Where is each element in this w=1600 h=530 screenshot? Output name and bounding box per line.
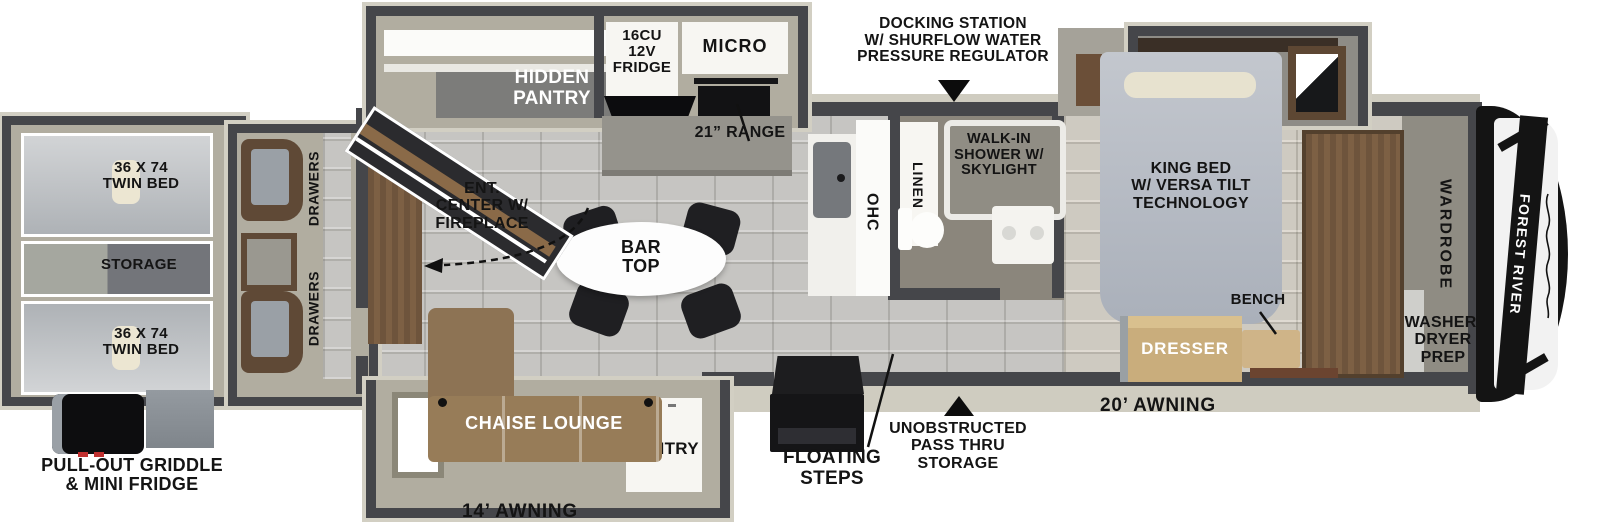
fridge-cabinet: 16CU 12V FRIDGE [606, 22, 678, 96]
mini-fridge [146, 390, 214, 448]
pantry-handle-2 [668, 404, 676, 407]
bedroom-mat [1250, 368, 1338, 378]
dresser: DRESSER [1128, 316, 1242, 382]
bench [1242, 330, 1300, 368]
floating-steps-box [770, 394, 864, 452]
storage-compartment: STORAGE [21, 241, 213, 297]
toilet-bowl [910, 212, 944, 248]
chaise-arm [428, 308, 514, 404]
awning-front-label: 20’ AWNING [1078, 396, 1238, 417]
docking-station-label: DOCKING STATION W/ SHURFLOW WATER PRESSU… [822, 16, 1084, 66]
twin-bed-top: 36 X 74 TWIN BED [21, 133, 213, 237]
bunk-window [241, 233, 297, 291]
bar-top-table: BAR TOP [556, 222, 726, 296]
king-bed-label: KING BED W/ VERSA TILT TECHNOLOGY [1106, 160, 1276, 212]
bedroom-closet [1302, 130, 1404, 378]
chaise-pillow-right [644, 398, 653, 407]
king-bed-pillow [1124, 72, 1256, 98]
pantry-fridge-divider [594, 16, 604, 118]
bunk-wardrobe-top [241, 139, 303, 221]
floating-steps-tread [778, 428, 856, 444]
ohc-label: OHC [863, 172, 880, 252]
bedroom-window [1288, 46, 1346, 120]
pass-thru-arrow-icon [944, 396, 974, 416]
bunk-wardrobe-bottom-mirror [251, 301, 289, 357]
faucet-icon [837, 174, 845, 182]
chaise-pillow-left [438, 398, 447, 407]
twin-bed-bottom: 36 X 74 TWIN BED [21, 301, 213, 395]
griddle-label: PULL-OUT GRIDDLE & MINI FRIDGE [16, 456, 248, 495]
micro-label: MICRO [682, 37, 788, 56]
storage-label: STORAGE [74, 257, 204, 273]
docking-station-arrow-icon [938, 80, 970, 102]
twin-bed-bottom-label: 36 X 74 TWIN BED [76, 326, 206, 358]
floorplan-canvas: 36 X 74 TWIN BED STORAGE 36 X 74 TWIN BE… [0, 0, 1600, 530]
step-well [772, 356, 864, 394]
wardrobe-label: WARDROBE [1436, 150, 1453, 320]
range-label: 21” RANGE [688, 124, 792, 141]
vanity-sink-left [1002, 226, 1016, 240]
drawers-top-label: DRAWERS [306, 134, 321, 244]
bunk-wardrobe-bottom [241, 291, 303, 373]
awning-rear-label: 14’ AWNING [400, 502, 640, 523]
bunk-room-tile-strip [323, 133, 351, 379]
dresser-label: DRESSER [1128, 340, 1242, 358]
pass-thru-label: UNOBSTRUCTED PASS THRU STORAGE [860, 420, 1056, 472]
bar-top-label: BAR TOP [591, 238, 691, 277]
bunk-wardrobe-top-mirror [251, 149, 289, 205]
ent-center-label: ENT. CENTER W/ FIREPLACE [406, 180, 558, 232]
drawers-bottom-label: DRAWERS [306, 254, 321, 364]
hallway-floor [888, 298, 1064, 382]
range-hood-line [694, 78, 778, 84]
pull-out-griddle [52, 394, 144, 454]
chaise-lounge: CHAISE LOUNGE [428, 396, 662, 462]
twin-bed-top-label: 36 X 74 TWIN BED [76, 160, 206, 192]
bath-bottom-wall [888, 288, 1000, 300]
vanity-sink-right [1030, 226, 1044, 240]
fridge-label: 16CU 12V FRIDGE [606, 28, 678, 77]
ohc-cabinet: OHC [856, 120, 890, 296]
bench-label: BENCH [1208, 292, 1308, 308]
kitchen-slideout: HIDDEN PANTRY 16CU 12V FRIDGE MICRO [366, 6, 808, 128]
micro-cabinet: MICRO [682, 22, 788, 74]
king-bed: KING BED W/ VERSA TILT TECHNOLOGY [1100, 52, 1282, 324]
bath-vanity [992, 206, 1054, 264]
bedroom-corner-door [1076, 54, 1102, 106]
chaise-label: CHAISE LOUNGE [444, 414, 644, 433]
shower-label: WALK-IN SHOWER W/ SKYLIGHT [938, 132, 1060, 179]
rear-bunk-slideout: 36 X 74 TWIN BED STORAGE 36 X 74 TWIN BE… [2, 116, 246, 406]
kitchen-sink [813, 142, 851, 218]
